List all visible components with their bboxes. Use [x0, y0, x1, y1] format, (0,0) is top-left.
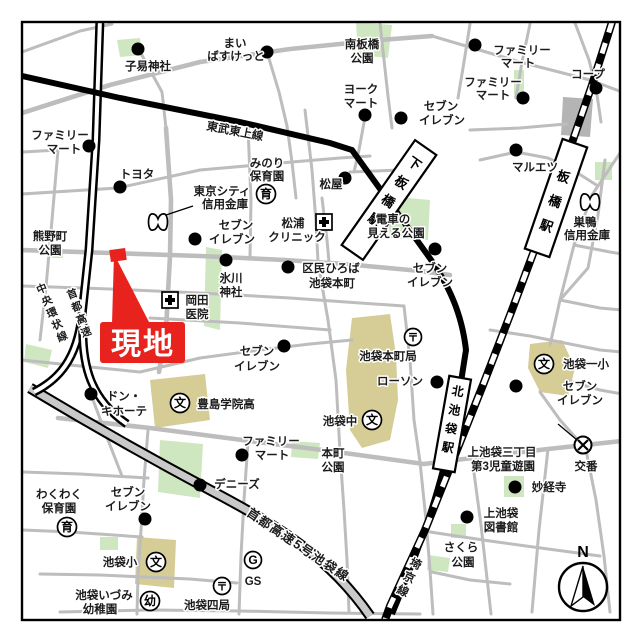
svg-text:保育園: 保育園: [41, 501, 77, 515]
svg-text:イレブン: イレブン: [234, 359, 280, 373]
label-kami-yuen: 上池袋三丁目: [468, 445, 537, 459]
bank-icon: [149, 214, 168, 230]
label-lawson: ローソン: [377, 376, 423, 388]
label-po4: 池袋四局: [184, 598, 230, 612]
svg-text:イレブン: イレブン: [105, 499, 151, 513]
label-gs: GS: [245, 576, 262, 588]
label-maruetsu: マルエツ: [512, 161, 558, 174]
post-office-icon: 〒: [214, 578, 231, 595]
label-seven-center: セブン: [219, 218, 254, 232]
school-icon: 文: [147, 553, 166, 572]
label-minami-park: 南板橋: [345, 37, 380, 51]
label-minori: みのり: [250, 157, 285, 170]
label-koyasu: 子易神社: [125, 59, 171, 73]
svg-text:公園: 公園: [39, 243, 62, 257]
svg-text:文: 文: [538, 356, 551, 371]
svg-text:イレブン: イレブン: [557, 393, 603, 407]
svg-text:第3児童遊園: 第3児童遊園: [471, 459, 535, 473]
nursery-icon: 育: [58, 518, 77, 537]
svg-text:マート: マート: [47, 143, 82, 156]
compass-north-label: N: [577, 544, 589, 561]
label-seven-shimo: セブン: [413, 261, 448, 275]
label-matsuya: 松屋: [320, 177, 343, 191]
svg-text:幼稚園: 幼稚園: [83, 602, 118, 616]
svg-text:イレブン: イレブン: [209, 232, 255, 246]
svg-text:マート: マート: [255, 449, 290, 462]
label-famima-tr2: ファミリー: [464, 76, 522, 89]
map-stage: 下板橋駅 板橋駅 北池袋駅 文: [0, 0, 640, 640]
school-icon: 文: [363, 411, 382, 430]
label-coop: コープ: [571, 67, 605, 81]
svg-text:マート: マート: [344, 97, 379, 110]
svg-text:信用金庫: 信用金庫: [202, 197, 248, 211]
label-kumin-hiroba: 区民ひろば: [302, 261, 360, 275]
nursery-icon: 育: [257, 185, 276, 204]
site-marker: [109, 248, 127, 262]
label-ikebukuro-jhs: 池袋中: [323, 414, 358, 428]
label-ichisho: 池袋一小: [563, 357, 609, 371]
post-office-icon: 〒: [405, 329, 422, 346]
label-densha-park: 電車の: [376, 212, 411, 226]
label-seven-bl: セブン: [111, 485, 146, 499]
label-honcho-park: 本町: [322, 446, 345, 460]
label-shuto5: 首都高速5号池袋線: [244, 505, 352, 585]
roads-group: [22, 23, 622, 614]
label-tokyo-city-bank: 東京シティ: [194, 184, 251, 198]
svg-text:育: 育: [61, 519, 73, 534]
label-honcho-po: 池袋本町局: [359, 349, 417, 363]
label-famima-tl: ファミリー: [31, 129, 89, 142]
label-matsuura: 松浦: [282, 216, 305, 230]
site-pointer: [112, 254, 150, 324]
svg-text:公園: 公園: [322, 460, 345, 474]
label-myokyoji: 妙経寺: [532, 480, 567, 494]
label-kumanocho: 熊野町: [33, 229, 68, 243]
svg-text:イレブン: イレブン: [407, 275, 453, 289]
school-icon: 文: [535, 355, 554, 374]
svg-text:ばすけっと: ばすけっと: [207, 49, 265, 63]
svg-text:池袋本町: 池袋本町: [309, 276, 355, 290]
label-ikebukuro-es: 池袋小: [103, 555, 138, 569]
gas-station-icon: G: [245, 552, 262, 569]
label-famima-tr1: ファミリー: [493, 44, 551, 57]
police-box-icon: [575, 437, 592, 454]
svg-text:保育園: 保育園: [249, 169, 285, 183]
svg-text:幼: 幼: [144, 593, 156, 608]
label-seven-genchi: セブン: [240, 344, 275, 358]
svg-text:〒: 〒: [408, 331, 419, 344]
svg-text:公園: 公園: [452, 555, 475, 569]
svg-text:クリニック: クリニック: [268, 231, 326, 244]
svg-text:イレブン: イレブン: [419, 113, 465, 127]
svg-text:医院: 医院: [186, 307, 209, 321]
label-library: 上池袋: [484, 506, 519, 520]
label-seven-ichisho: セブン: [563, 379, 598, 393]
svg-text:文: 文: [174, 395, 187, 410]
svg-text:公園: 公園: [351, 51, 374, 65]
svg-text:キホーテ: キホーテ: [101, 405, 147, 418]
label-famima-c: ファミリー: [242, 435, 300, 448]
kindergarten-icon: 幼: [141, 592, 160, 611]
site-label: 現地: [111, 328, 175, 361]
svg-text:マート: マート: [501, 57, 536, 70]
svg-text:G: G: [248, 553, 257, 567]
label-donki: ドン・: [107, 390, 142, 403]
compass-rose: N: [559, 544, 607, 611]
svg-text:文: 文: [366, 412, 379, 427]
shuto-route5-expressway: [30, 388, 370, 616]
svg-text:〒: 〒: [217, 580, 228, 593]
label-koban: 交番: [575, 459, 598, 473]
school-icon: 文: [171, 394, 190, 413]
label-wakuwaku: わくわく: [36, 488, 82, 501]
label-seven-york: セブン: [424, 99, 459, 113]
svg-text:信用金庫: 信用金庫: [564, 228, 610, 242]
svg-text:育: 育: [260, 186, 272, 201]
hospital-icon: [316, 214, 332, 230]
map-frame: [22, 22, 620, 620]
map-canvas: 下板橋駅 板橋駅 北池袋駅 文: [0, 0, 640, 640]
label-dennys: デニーズ: [214, 477, 260, 491]
svg-text:図書館: 図書館: [484, 520, 519, 534]
svg-text:神社: 神社: [220, 285, 243, 299]
label-toshima-gakuin: 豊島学院高: [197, 397, 255, 411]
label-sakura-park: さくら: [444, 541, 479, 554]
label-toyota: トヨタ: [120, 167, 155, 181]
svg-text:マート: マート: [476, 89, 511, 102]
label-yorkmart: ヨーク: [344, 83, 379, 96]
label-hikawa: 氷川: [220, 271, 243, 285]
label-sugamo-bank: 巣鴨: [573, 215, 597, 229]
label-maibasket: まい: [224, 37, 247, 50]
label-izumi: 池袋いづみ: [75, 588, 133, 602]
label-okada: 岡田: [186, 294, 209, 307]
svg-text:文: 文: [150, 554, 163, 569]
svg-text:見える公園: 見える公園: [366, 226, 424, 240]
hospital-icon: [162, 292, 178, 308]
